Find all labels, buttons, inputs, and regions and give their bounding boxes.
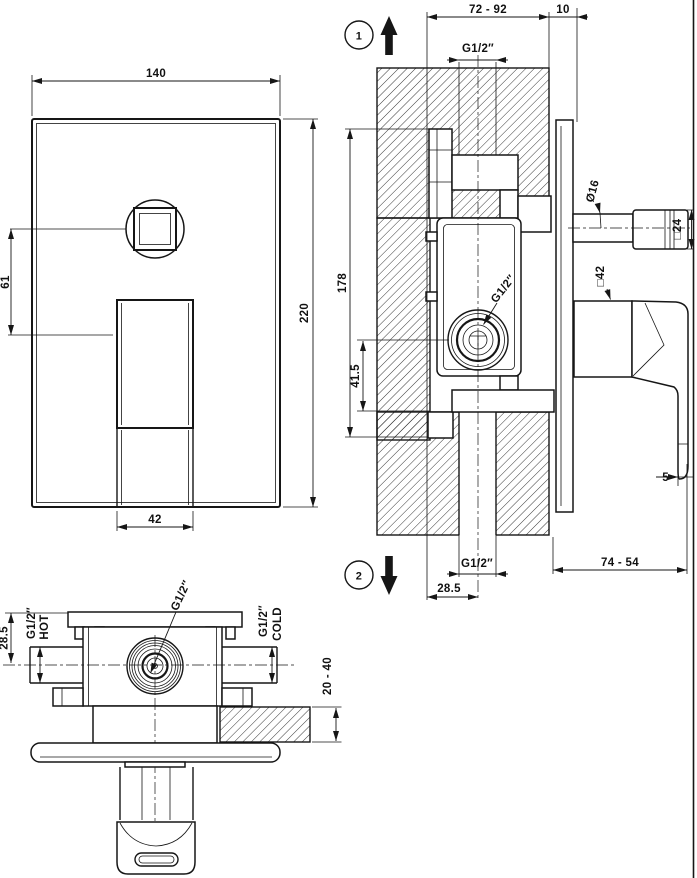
- mixer-body: [437, 218, 521, 376]
- ear-right: [222, 688, 252, 706]
- step-marker-1: 1: [356, 31, 362, 43]
- top-view: 28.5 G1/2″ HOT G1/2″ G1/2″ COLD 20 - 40: [0, 579, 342, 874]
- dim-front-width: 140: [146, 68, 166, 80]
- dim-front-height: 220: [299, 303, 311, 323]
- arrow-up-icon: [381, 16, 398, 55]
- front-view: 140 220 61 42: [0, 68, 318, 531]
- dim-center-thread: G1/2″: [169, 579, 193, 613]
- dim-cold-thread: G1/2″: [258, 605, 270, 637]
- side-plate: [556, 120, 573, 512]
- dim-bottom-port-thread: G1/2″: [461, 558, 493, 570]
- step-marker-2: 2: [356, 571, 362, 583]
- dim-outlet-offset: 41.5: [350, 364, 362, 388]
- bottom-outlet-hole: [460, 411, 496, 536]
- top-port-block: [452, 155, 518, 190]
- mounting-flange-bar: [68, 612, 242, 627]
- dim-plate-depth: 10: [556, 4, 569, 16]
- top-connector: [500, 190, 518, 218]
- dim-depth-range: 72 - 92: [469, 4, 507, 16]
- lower-flange: [452, 390, 554, 412]
- dim-hot-thread: G1/2″: [26, 607, 38, 639]
- dim-axis-offset: 28.5: [0, 626, 11, 650]
- wall-section-topview: [220, 707, 310, 742]
- side-handle-block: [574, 301, 632, 377]
- dim-lever-gap: 5: [662, 472, 669, 484]
- diverter-stem: [573, 214, 633, 242]
- ear-left: [53, 688, 83, 706]
- side-section-view: 72 - 92 10 1 G1/2″ 178 41.5 Ø16 □24 □42 …: [337, 4, 694, 600]
- arrow-down-icon: [381, 556, 398, 595]
- body-tab-upper: [426, 232, 437, 241]
- technical-drawing-page: 140 220 61 42: [0, 0, 697, 878]
- mounting-bracket: [429, 129, 452, 218]
- mixer-installation-drawing: 140 220 61 42: [0, 0, 697, 878]
- front-handle: [117, 300, 193, 428]
- dim-button-offset: 61: [0, 275, 12, 289]
- bracket-foot: [428, 412, 453, 438]
- side-handle-lever: [632, 301, 688, 479]
- dim-bottom-port-offset: 28.5: [437, 583, 461, 595]
- dim-handle-depth-range: 74 - 54: [601, 557, 639, 569]
- dim-knob-square: □24: [672, 218, 684, 239]
- handle-base-step: [125, 762, 185, 767]
- body-tab-lower: [426, 292, 437, 301]
- label-hot: HOT: [39, 614, 51, 639]
- dim-stem-diameter: Ø16: [584, 179, 601, 204]
- wall-section-left: [377, 218, 430, 440]
- diverter-button-square: [134, 208, 176, 250]
- plate-edge: [31, 743, 280, 762]
- dim-top-port-thread: G1/2″: [462, 43, 494, 55]
- top-elbow-housing: [518, 196, 551, 232]
- dim-handle-width: 42: [148, 514, 161, 526]
- dim-handle-square: □42: [595, 266, 607, 287]
- body-step: [500, 376, 518, 390]
- dim-body-height: 178: [337, 273, 349, 293]
- dim-wall-depth-range: 20 - 40: [322, 657, 334, 695]
- label-cold: COLD: [272, 607, 284, 641]
